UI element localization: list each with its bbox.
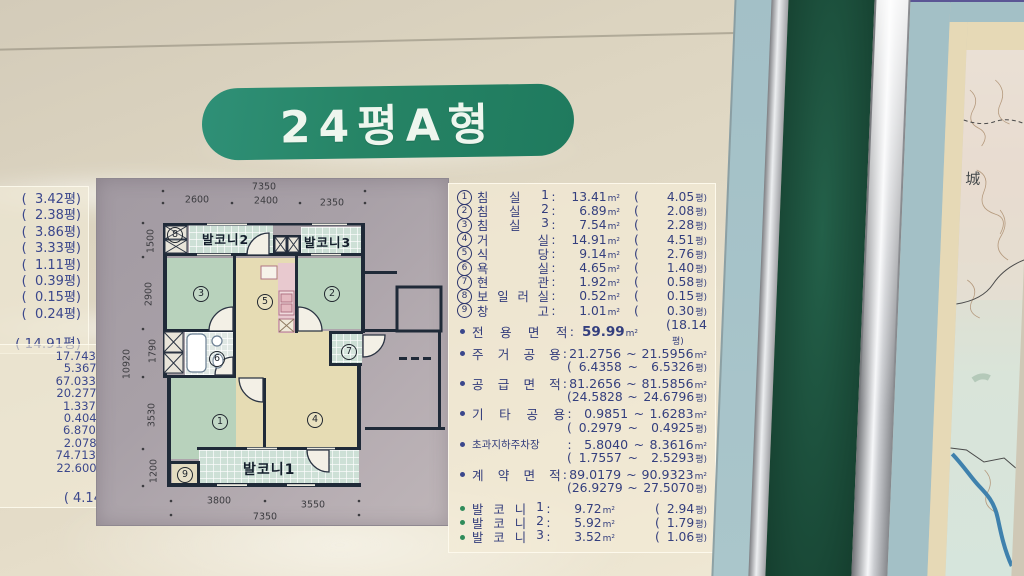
pyeong-line: ( 0.39평): [0, 274, 81, 290]
dim-label: 1790: [148, 339, 159, 363]
plan-room-number-3: 3: [193, 286, 209, 302]
room-pyeong: (4.51평): [620, 233, 707, 247]
balcony-area: 5.92m²: [553, 516, 615, 530]
room-area: 13.41m²: [558, 190, 620, 204]
room-number-badge: 9: [457, 303, 472, 318]
bullet: [460, 535, 465, 540]
dim-label: 1200: [149, 459, 160, 483]
summary-row: 주거공용 : 21.2756 ~ 21.5956m²: [457, 346, 707, 361]
balcony-pyeong: (1.06평): [615, 530, 707, 544]
range-max: 8.3616m²: [650, 437, 707, 452]
dim-label: 2350: [320, 198, 344, 209]
pyeong-line: ( 3.33평): [0, 241, 81, 257]
range-max: 1.6283m²: [650, 406, 707, 421]
balcony-pyeong: (2.94평): [615, 502, 707, 516]
room-area: 4.65m²: [558, 261, 620, 275]
summary-pyeong: (18.14평): [638, 317, 707, 347]
summary-pyeong-row: ( 1.7557 ~ 2.5293평): [457, 451, 707, 464]
range-min: 5.8040: [574, 437, 628, 452]
summary-row: 초과지하주차장 : 5.8040 ~ 8.3616m²: [457, 437, 707, 452]
photo-of-floorplan-poster: 24평A형 ( 3.42평) ( 2.38평) ( 3.86평) ( 3.33평…: [0, 0, 1024, 576]
plan-room-number-6: 6: [209, 351, 225, 367]
dim-label: 2900: [144, 282, 155, 306]
room-area: 7.54m²: [558, 218, 620, 232]
summary-label: 초과지하주차장: [472, 437, 565, 452]
dim-label: 3530: [147, 403, 158, 427]
plan-room-number-2: 2: [324, 286, 340, 302]
poster-seam-line: [0, 31, 772, 50]
summary-row-exclusive-area: 전용면적 : 59.99m² (18.14평): [457, 325, 707, 340]
balcony-3-label: 발코니3: [304, 232, 351, 251]
pyeong-line: ( 0.15평): [0, 290, 81, 306]
plan-room-number-1: 1: [212, 414, 228, 430]
summary-label: 전용면적: [472, 322, 567, 341]
plan-room-number-4: 4: [307, 412, 323, 428]
bullet: [460, 411, 465, 416]
room-number-badge: 3: [457, 218, 472, 233]
dim-label: 3800: [207, 496, 231, 507]
summary-row: 계약면적 : 89.0179 ~ 90.9323m²: [457, 467, 707, 482]
balcony-label: 발코니3: [472, 528, 544, 546]
bullet: [460, 506, 465, 511]
room-number-badge: 6: [457, 261, 472, 276]
range-max: 21.5956m²: [642, 346, 707, 361]
range-max: 81.5856m²: [642, 376, 707, 391]
balcony-pyeong: (1.79평): [615, 516, 707, 530]
river: [948, 454, 1016, 566]
room-pyeong: (4.05평): [620, 190, 707, 204]
room-area: 6.89m²: [558, 204, 620, 218]
left-pyeong-column: ( 3.42평) ( 2.38평) ( 3.86평) ( 3.33평) ( 1.…: [0, 186, 89, 354]
map-place-label: 城: [965, 168, 981, 189]
map-frame-cream-mat: [967, 22, 1024, 50]
map-frame-blue-mat: [950, 2, 1024, 24]
room-number-badge: 1: [457, 190, 472, 205]
dim-total-label: 10920: [122, 349, 133, 379]
summary-label: 공급면적: [472, 374, 561, 393]
room-area: 0.52m²: [558, 289, 620, 303]
room-number-badge: 4: [457, 232, 472, 247]
summary-row: 기타공용 : 0.9851 ~ 1.6283m²: [457, 407, 707, 422]
room-area: 1.01m²: [558, 304, 620, 318]
range-min: 81.2656: [569, 376, 621, 391]
range-max: 90.9323m²: [642, 467, 707, 482]
balcony-2-label: 발코니2: [202, 229, 249, 248]
room-number-badge: 5: [457, 246, 472, 261]
dim-label: 7350: [252, 182, 276, 193]
title-badge: 24평A형: [202, 83, 575, 160]
dim-label: 7350: [253, 512, 277, 523]
summary-row: 공급면적 : 81.2656 ~ 81.5856m²: [457, 376, 707, 391]
room-number-badge: 8: [457, 289, 472, 304]
room-label: 창고: [477, 302, 549, 320]
floorplan-panel: 발코니2 발코니3 발코니1 8 3 5 2 6 7 1 4 9 7350 26…: [96, 178, 449, 526]
page-title: 24평A형: [279, 88, 496, 155]
balcony-1-label: 발코니1: [243, 459, 295, 479]
pyeong-line: ( 3.86평): [0, 225, 81, 241]
room-pyeong: (0.58평): [620, 275, 707, 289]
pyeong-line: ( 2.38평): [0, 208, 81, 224]
plan-room-number-9: 9: [177, 467, 193, 483]
dim-label: 3550: [301, 500, 325, 511]
plan-room-number-7: 7: [341, 344, 357, 360]
room-pyeong: (2.28평): [620, 218, 707, 232]
bullet: [460, 381, 465, 386]
summary-label: 주거공용: [472, 344, 561, 363]
balcony-area: 3.52m²: [553, 530, 615, 544]
bullet: [460, 329, 465, 334]
range-min: 89.0179: [569, 467, 621, 482]
room-pyeong: (0.30평): [620, 304, 707, 318]
range-min: 21.2756: [569, 346, 621, 361]
pyeong-line: ( 0.24평): [0, 307, 81, 323]
pyeong-line: ( 1.11평): [0, 258, 81, 274]
dim-label: 1500: [146, 229, 157, 253]
room-area: 9.14m²: [558, 247, 620, 261]
bullet: [460, 351, 465, 356]
room-area: 1.92m²: [558, 275, 620, 289]
right-frame-assembly: 城: [711, 0, 1024, 576]
room-row: 9 창고 : 1.01m² (0.30평): [457, 304, 707, 318]
room-area: 14.91m²: [558, 233, 620, 247]
dim-label: 2400: [254, 196, 278, 207]
pyeong-line: ( 3.42평): [0, 192, 81, 208]
room-number-badge: 2: [457, 204, 472, 219]
range-min: 0.9851: [574, 406, 628, 421]
dim-label: 2600: [185, 195, 209, 206]
plan-room-number-8: 8: [167, 227, 183, 243]
bullet: [460, 442, 465, 447]
plan-room-number-5: 5: [257, 294, 273, 310]
room-pyeong: (2.08평): [620, 204, 707, 218]
balcony-area: 9.72m²: [553, 502, 615, 516]
bullet: [460, 472, 465, 477]
bullet: [460, 520, 465, 525]
summary-label: 계약면적: [472, 465, 561, 484]
room-pyeong: (2.76평): [620, 247, 707, 261]
summary-label: 기타공용: [472, 404, 565, 423]
summary-area: 59.99m²: [576, 324, 638, 340]
area-table-card: 1 침실1 : 13.41m² (4.05평) 2 침실2 : 6.89m² (…: [448, 183, 716, 553]
room-pyeong: (1.40평): [620, 261, 707, 275]
elevator-shaft: [397, 287, 441, 331]
room-pyeong: (0.15평): [620, 289, 707, 303]
room-number-badge: 7: [457, 275, 472, 290]
balcony-row: 발코니3 : 3.52m² (1.06평): [457, 530, 707, 544]
